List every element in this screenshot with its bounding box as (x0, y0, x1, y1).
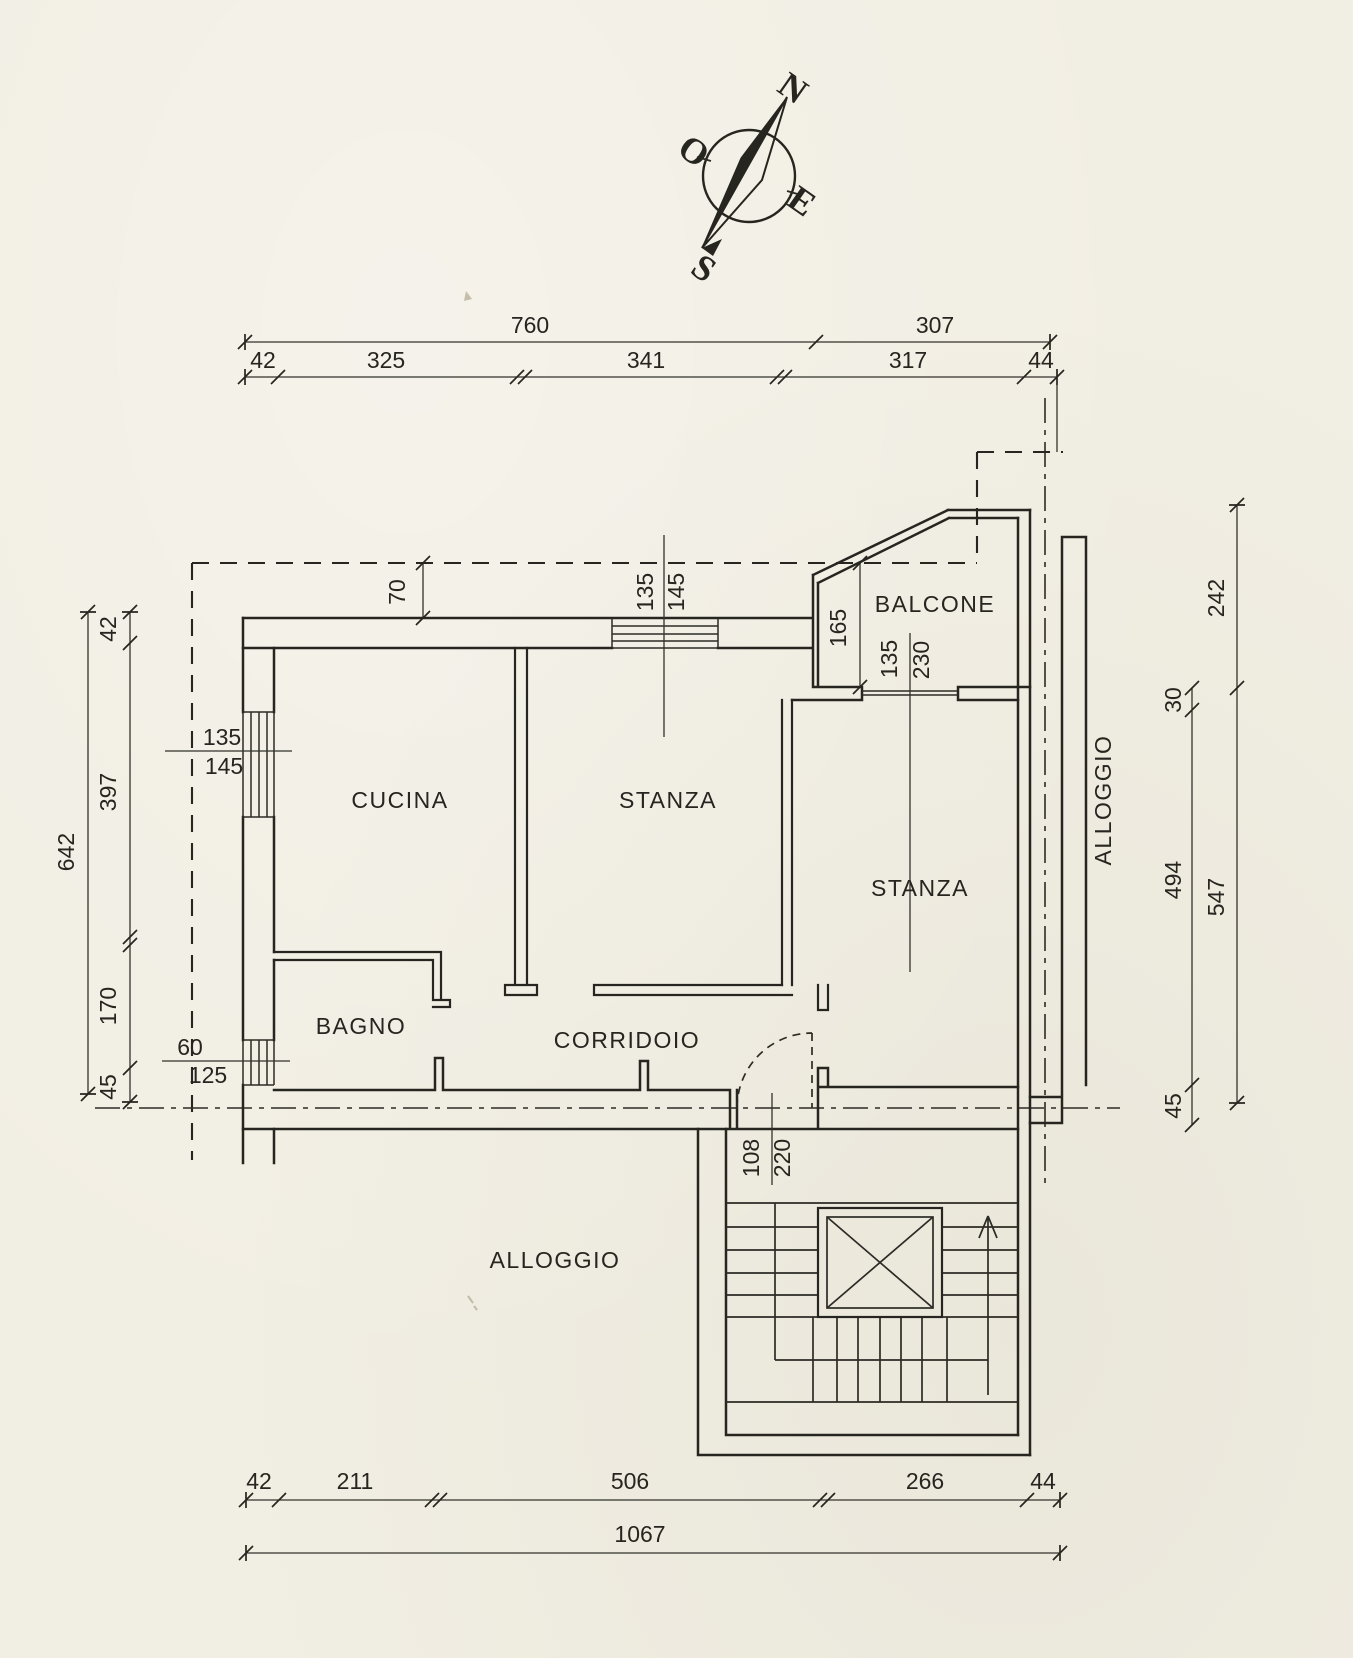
dim-top-760: 760 (511, 312, 549, 338)
dim-left-170: 170 (95, 987, 121, 1025)
dim-right-45: 45 (1160, 1093, 1186, 1119)
dim-top-44: 44 (1028, 347, 1054, 373)
centerlines (95, 398, 1120, 1185)
interior-walls (274, 648, 828, 1010)
dim-bottom-42: 42 (246, 1468, 272, 1494)
dim-top-42: 42 (250, 347, 276, 373)
room-label-alloggio-right: ALLOGGIO (1090, 735, 1116, 866)
room-label-stanza-mid: STANZA (619, 787, 717, 813)
elevator-shaft (818, 1208, 942, 1317)
dim-left-45: 45 (95, 1074, 121, 1100)
room-label-alloggio-bottom: ALLOGGIO (490, 1247, 621, 1273)
compass-label-north: N (771, 64, 815, 112)
dim-left-total-642: 642 (53, 833, 79, 871)
right-wall (1018, 510, 1030, 1455)
door-ingresso-width: 108 (738, 1139, 764, 1177)
compass-needle-light (702, 97, 787, 248)
door-balcone-width: 135 (876, 640, 902, 678)
dim-right-30: 30 (1160, 687, 1186, 713)
window-bagno-width: 60 (177, 1034, 203, 1060)
neighbor-wall (1030, 537, 1086, 1123)
dimension-lines (80, 334, 1245, 1561)
dim-bottom-506: 506 (611, 1468, 649, 1494)
window-stanza-height: 145 (663, 573, 689, 611)
compass-rose: N O E S (671, 64, 823, 290)
window-stanza-width: 135 (632, 573, 658, 611)
dim-top-307: 307 (916, 312, 954, 338)
dim-left-397: 397 (95, 773, 121, 811)
door-balcone-height: 230 (908, 641, 934, 679)
window-cucina-width: 135 (203, 724, 241, 750)
dim-left-42: 42 (95, 616, 121, 642)
floor-plan-page: N O E S 760 307 42 325 (0, 0, 1353, 1658)
room-label-balcone: BALCONE (875, 591, 995, 617)
dim-setback-70: 70 (384, 579, 410, 605)
entrance-door-swing (737, 1033, 812, 1108)
dim-bottom-266: 266 (906, 1468, 944, 1494)
dim-top-317: 317 (889, 347, 927, 373)
dim-top-325: 325 (367, 347, 405, 373)
room-label-stanza-right: STANZA (871, 875, 969, 901)
dim-bottom-total-1067: 1067 (614, 1521, 665, 1547)
dim-right-494: 494 (1160, 861, 1186, 900)
floor-plan-drawing: N O E S 760 307 42 325 (0, 0, 1353, 1658)
room-label-corridoio: CORRIDOIO (554, 1027, 700, 1053)
dim-right-547: 547 (1203, 878, 1229, 916)
room-label-bagno: BAGNO (316, 1013, 407, 1039)
scan-marks (464, 291, 477, 1310)
room-label-cucina: CUCINA (351, 787, 448, 813)
compass-label-south: S (684, 246, 723, 290)
window-cucina-height: 145 (205, 753, 243, 779)
dim-balcony-165: 165 (825, 609, 851, 647)
compass-label-west: O (671, 127, 717, 176)
window-bagno-height: 125 (189, 1062, 227, 1088)
door-ingresso-height: 220 (769, 1139, 795, 1177)
dim-bottom-211: 211 (337, 1468, 374, 1494)
dim-bottom-44: 44 (1030, 1468, 1056, 1494)
dim-top-341: 341 (627, 347, 665, 373)
stairs-up-arrow (979, 1216, 997, 1395)
compass-label-east: E (781, 178, 824, 225)
dim-right-242: 242 (1203, 579, 1229, 617)
